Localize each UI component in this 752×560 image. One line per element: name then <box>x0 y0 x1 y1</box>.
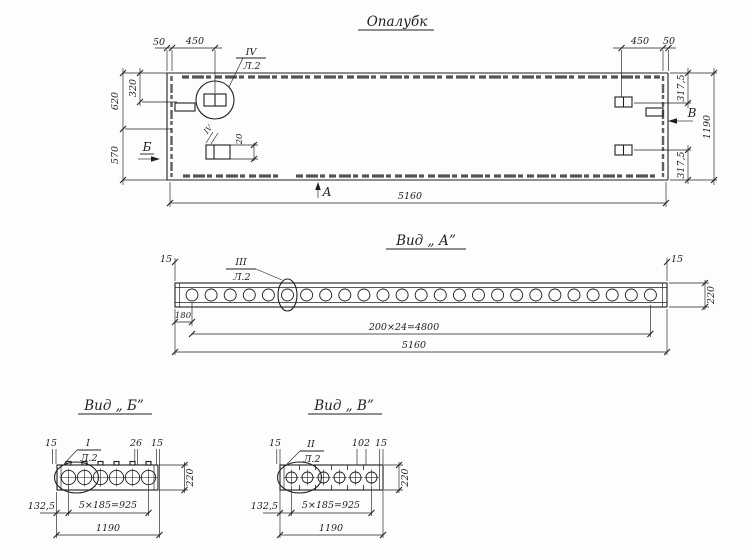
plan-detail-dim: 20 <box>235 133 245 145</box>
dim-label: 5160 <box>398 191 422 202</box>
dim-label: 50 <box>663 36 675 47</box>
view-arrow-label: Б <box>142 140 152 154</box>
view-a: Вид „ А” III Л.2 15 <box>160 233 717 355</box>
plan-detail-mark: IV <box>201 122 215 136</box>
view-v-title: Вид „ В” <box>313 398 374 414</box>
plan-dim-right: 317,5 317,5 1190 <box>634 68 717 185</box>
plan-dim-top-right: 450 50 <box>613 36 676 97</box>
dim-label: 570 <box>110 146 121 164</box>
dim-label: 50 <box>153 37 165 48</box>
technical-drawing-canvas: Опалубк IV Л.2 <box>0 0 752 560</box>
view-b-callout-sheet: Л.2 <box>80 453 98 464</box>
view-v-callout-sheet: Л.2 <box>303 454 321 465</box>
plan-left-tab <box>175 103 195 111</box>
view-b-bolts <box>60 469 158 487</box>
dim-label: 620 <box>110 92 121 110</box>
dim-label: 320 <box>128 79 139 97</box>
dim-label: 450 <box>630 36 649 47</box>
plan-callout-sheet: Л.2 <box>243 61 261 72</box>
dim-label: 5×185=925 <box>302 500 360 511</box>
view-a-callout: III Л.2 <box>226 257 297 311</box>
dim-label: 15 <box>375 438 387 449</box>
plan-view-arrow-v: В <box>668 106 697 124</box>
plan-title: Опалубк <box>367 14 428 30</box>
view-v: Вид „ В” <box>251 398 411 538</box>
view-v-callout: II Л.2 <box>278 439 325 493</box>
dim-label: 180 <box>175 311 192 321</box>
plan-view-arrow-b: Б <box>138 140 160 162</box>
plan-small-detail: IV 20 <box>201 122 258 162</box>
dim-label: 102 <box>352 438 370 449</box>
dim-label: 5160 <box>402 340 426 351</box>
dim-label: 220 <box>185 468 196 487</box>
dim-label: 317,5 <box>676 74 687 101</box>
view-b-title: Вид „ Б” <box>83 398 144 414</box>
plan-dim-top-left: 50 450 <box>153 36 222 71</box>
view-a-callout-mark: III <box>234 257 247 268</box>
hole-row <box>186 289 656 301</box>
dim-label: 450 <box>185 36 204 47</box>
dim-label: 5×185=925 <box>79 500 137 511</box>
dim-label: 15 <box>269 438 281 449</box>
drawing-sheet: Опалубк IV Л.2 <box>0 0 752 560</box>
dim-label: 317,5 <box>676 151 687 178</box>
dim-label: 26 <box>129 438 142 449</box>
dim-label: 200×24=4800 <box>368 322 439 333</box>
plan-right-cleats <box>615 97 663 155</box>
view-v-callout-mark: II <box>306 439 315 450</box>
view-a-title: Вид „ А” <box>395 233 456 249</box>
dim-label: 15 <box>45 438 57 449</box>
view-b-dims: 15 26 15 220 132,5 5×185=925 <box>28 438 196 538</box>
view-b-callout-mark: I <box>85 438 90 449</box>
plan-callout-mark: IV <box>245 47 258 58</box>
plan-callout-detail: IV Л.2 <box>196 47 266 119</box>
dim-label: 1190 <box>702 115 713 139</box>
dim-label: 220 <box>400 468 411 487</box>
view-v-dims: 15 102 15 220 132,5 5×185=925 1190 <box>251 438 411 538</box>
dim-label: 1190 <box>96 523 120 534</box>
dim-label: 15 <box>671 254 683 265</box>
view-b: Вид „ Б” I Л.2 <box>28 398 196 538</box>
dim-label: 132,5 <box>251 501 278 512</box>
view-arrow-label: В <box>687 106 697 120</box>
dim-label: 15 <box>151 438 163 449</box>
plan-view: Опалубк IV Л.2 <box>110 14 717 207</box>
dim-label: 15 <box>160 254 172 265</box>
dim-label: 1190 <box>319 523 343 534</box>
dim-label: 132,5 <box>28 501 55 512</box>
plan-dim-bottom: А 5160 <box>167 182 669 207</box>
view-a-callout-sheet: Л.2 <box>233 272 251 283</box>
dim-label: 220 <box>706 286 717 305</box>
view-arrow-label: А <box>321 185 331 199</box>
view-v-bolts <box>284 465 379 490</box>
